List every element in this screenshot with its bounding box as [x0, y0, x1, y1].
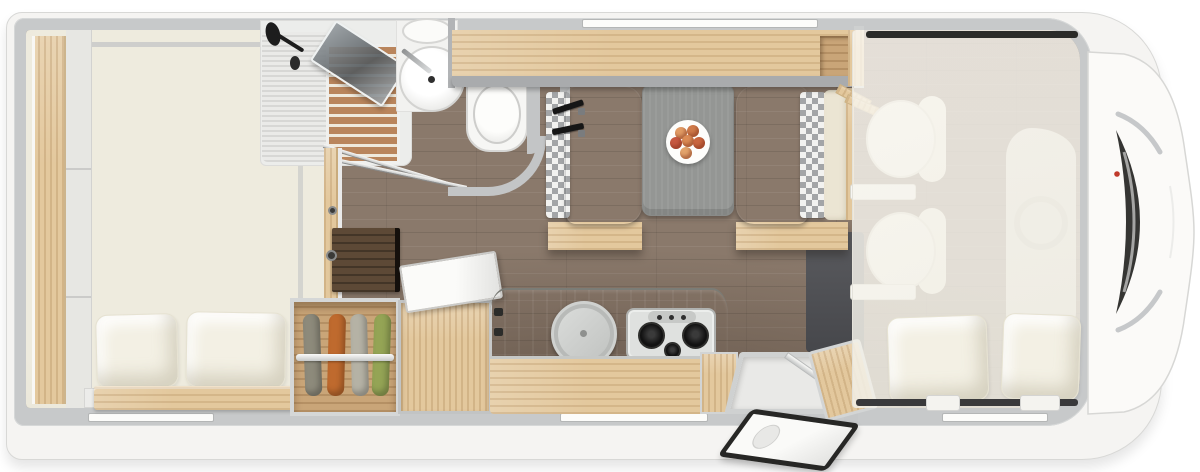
vanity-upper-basin [402, 18, 452, 44]
bedside-shelf [32, 36, 66, 404]
partition-handle-lower [326, 250, 337, 261]
window-cab-bottom [942, 413, 1048, 422]
hob-knob-1 [657, 315, 662, 320]
fruit-6 [680, 147, 692, 159]
windshield-top-strip [866, 31, 1078, 38]
counter-latch-2 [494, 328, 503, 336]
fruit-5 [693, 137, 705, 149]
door-handle-recess [747, 423, 786, 450]
dinette-base-right [736, 222, 848, 250]
window-top [582, 19, 818, 28]
bed-foot-rail [94, 386, 294, 410]
hob-burner-left [638, 322, 665, 349]
dropdown-bed-pillow-left [887, 314, 990, 403]
fruit-3 [670, 137, 682, 149]
bedside-cabinet [66, 30, 92, 408]
bed-frame-clip-1 [926, 395, 960, 411]
tv-cabinet-top [332, 228, 400, 292]
washbasin-drain [428, 76, 435, 83]
sink-lid-knob [580, 330, 587, 337]
hob-knob-3 [681, 315, 686, 320]
front-nose-body [1088, 52, 1194, 414]
dinette-cushion-right [800, 92, 826, 218]
overhead-locker [452, 30, 856, 78]
fruit-plate [666, 120, 710, 164]
bed-pillow-right [185, 311, 286, 389]
shower-mixer-knob [290, 56, 300, 70]
bed-pillow-left [95, 313, 179, 389]
wardrobe [290, 298, 400, 416]
hob-controls [648, 311, 696, 323]
counter-latch-1 [494, 308, 503, 316]
seatbelt-buckle-1 [578, 108, 585, 115]
overhead-front-edge [452, 76, 856, 87]
floorplan-scene [0, 0, 1200, 472]
bed-frame-clip-2 [1020, 395, 1060, 411]
window-rear-bottom [88, 413, 214, 422]
storage-chest [398, 300, 492, 414]
toilet-lid [473, 84, 521, 144]
dropdown-bed-pillow-right [1001, 313, 1082, 402]
vehicle-front [1072, 34, 1200, 438]
wardrobe-rail [296, 354, 394, 361]
dinette-base-left [548, 222, 642, 250]
hob-knob-2 [669, 315, 674, 320]
brand-red-accent [1114, 171, 1120, 177]
window-kitchen-bottom [560, 413, 708, 422]
dinette-table [642, 84, 734, 216]
partition-handle-upper [328, 206, 337, 215]
dinette-bench-right [736, 86, 808, 224]
hob-burner-right [682, 322, 709, 349]
seatbelt-buckle-2 [578, 130, 585, 137]
